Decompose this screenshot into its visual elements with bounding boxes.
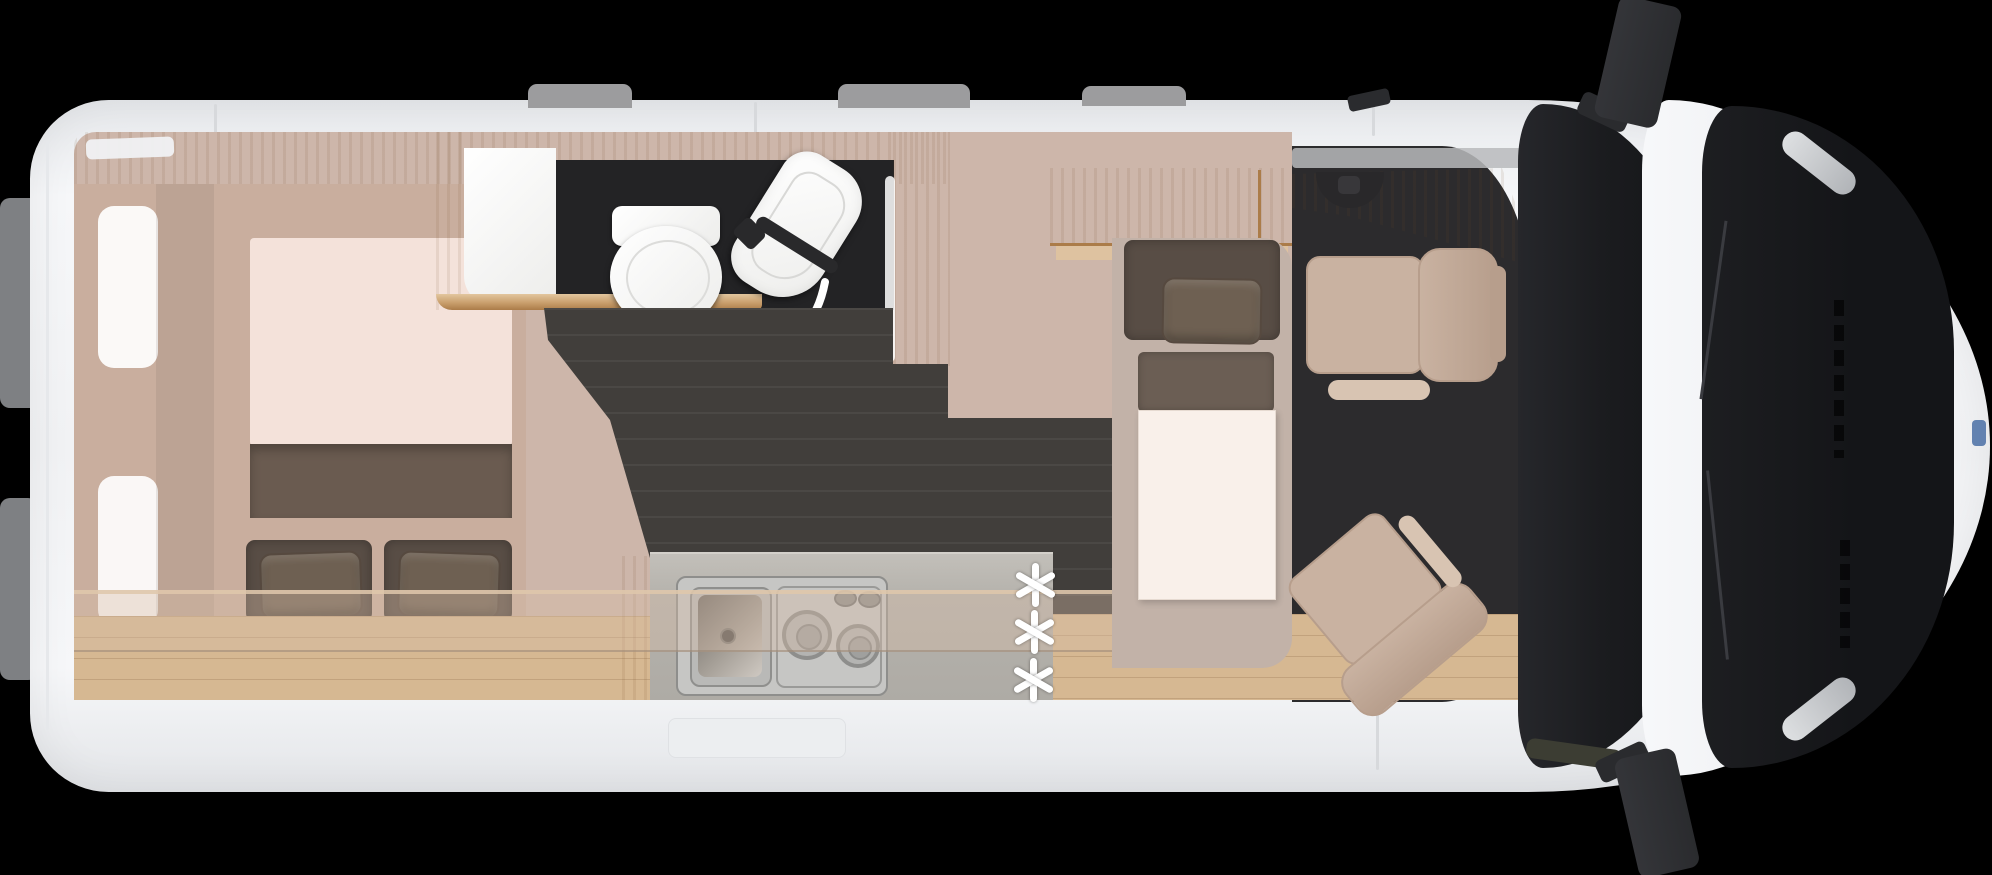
optional-equipment-asterisk-icon: [1013, 563, 1057, 607]
camper-floorplan-scene: [0, 0, 1992, 875]
optional-equipment-asterisk-icon: [1012, 610, 1056, 654]
steering-wheel-hub: [1338, 176, 1360, 194]
driver-door-sill: [1292, 148, 1522, 168]
cabinet-divider: [1258, 170, 1261, 244]
hood: [1702, 106, 1954, 768]
popup-bed-overlay: [74, 590, 1112, 652]
bathroom-wall-right: [893, 132, 950, 366]
blanket: [250, 444, 512, 518]
brand-badge: [1972, 420, 1986, 446]
driver-seat-cushion: [1306, 256, 1424, 374]
body-seam: [214, 104, 217, 134]
bathroom-wall-left: [436, 132, 466, 310]
dinette-table: [1138, 410, 1276, 600]
driver-seat-headrest: [1490, 266, 1506, 362]
roof-vent-icon: [528, 84, 632, 108]
overhead-cabinet: [1050, 168, 1292, 246]
roof-crossbar: [86, 136, 175, 159]
grille-slats: [1834, 300, 1844, 458]
body-seam: [754, 102, 757, 134]
pillow: [1161, 277, 1262, 345]
driver-seat-backrest: [1418, 248, 1498, 382]
bathroom-inner-wall: [464, 148, 556, 306]
bench-seat-cushion: [1138, 352, 1274, 412]
optional-equipment-asterisk-icon: [1011, 658, 1055, 702]
roof-vent-icon: [838, 84, 970, 108]
grille-slats: [1840, 540, 1850, 648]
rear-door-seam: [46, 140, 49, 730]
entry-step-recess: [668, 718, 846, 758]
driver-seat-armrest: [1328, 380, 1430, 400]
rear-door-panel: [98, 206, 158, 368]
roof-vent-icon: [1082, 86, 1186, 106]
